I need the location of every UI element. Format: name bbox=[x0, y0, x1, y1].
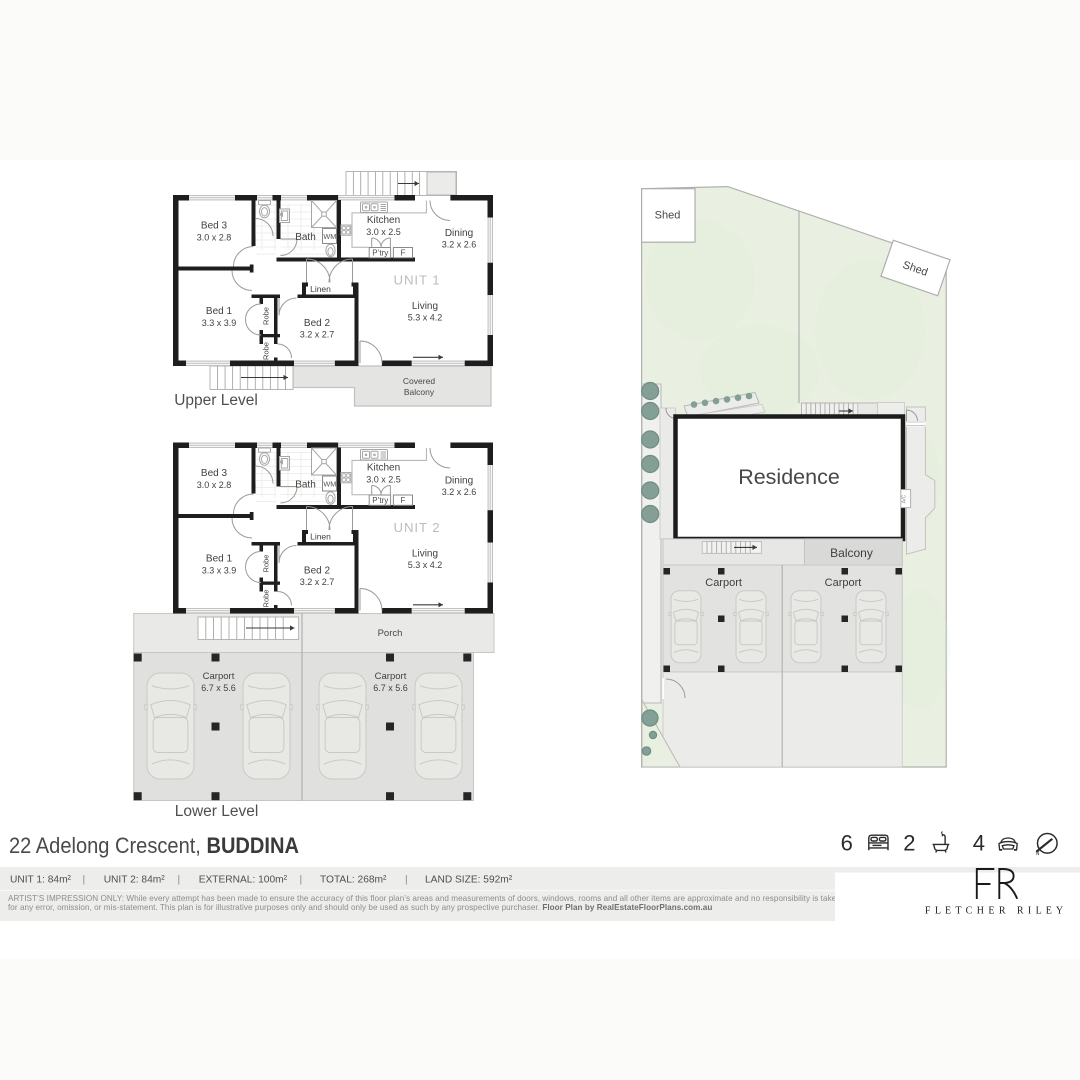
svg-text:Bed 2: Bed 2 bbox=[304, 318, 331, 329]
svg-text:22 Adelong Crescent, BUDDINA: 22 Adelong Crescent, BUDDINA bbox=[9, 833, 299, 858]
svg-text:Bath: Bath bbox=[295, 480, 316, 491]
svg-text:Lower Level: Lower Level bbox=[175, 803, 259, 820]
svg-text:4: 4 bbox=[973, 831, 985, 856]
svg-text:Linen: Linen bbox=[310, 532, 331, 542]
svg-text:P’try: P’try bbox=[372, 249, 388, 258]
svg-text:UNIT 1: 84m²: UNIT 1: 84m² bbox=[10, 875, 72, 886]
svg-text:Living: Living bbox=[412, 549, 438, 560]
svg-text:3.2 x 2.7: 3.2 x 2.7 bbox=[300, 330, 335, 340]
svg-text:6.7 x 5.6: 6.7 x 5.6 bbox=[201, 683, 236, 693]
svg-text:F: F bbox=[401, 496, 406, 505]
svg-text:TOTAL: 268m²: TOTAL: 268m² bbox=[320, 875, 387, 886]
svg-text:Kitchen: Kitchen bbox=[367, 215, 400, 226]
svg-text:Balcony: Balcony bbox=[830, 546, 873, 560]
svg-text:Linen: Linen bbox=[310, 284, 331, 294]
svg-text:|: | bbox=[405, 875, 408, 886]
svg-text:F L E T C H E R R I L E Y: F L E T C H E R R I L E Y bbox=[925, 906, 1064, 917]
svg-text:|: | bbox=[83, 875, 86, 886]
svg-text:Bath: Bath bbox=[295, 232, 316, 243]
svg-text:A/C: A/C bbox=[902, 494, 908, 503]
svg-text:Carport: Carport bbox=[375, 671, 407, 682]
svg-text:Porch: Porch bbox=[378, 628, 403, 639]
svg-text:Bed 1: Bed 1 bbox=[206, 306, 233, 317]
svg-text:UNIT 2: 84m²: UNIT 2: 84m² bbox=[104, 875, 166, 886]
svg-text:Dining: Dining bbox=[445, 476, 473, 487]
svg-text:for any error, omission, or mi: for any error, omission, or mis-statemen… bbox=[8, 903, 712, 912]
svg-text:Living: Living bbox=[412, 301, 438, 312]
svg-text:3.0 x 2.8: 3.0 x 2.8 bbox=[197, 233, 232, 243]
svg-text:Robe: Robe bbox=[262, 307, 271, 325]
svg-text:Bed 1: Bed 1 bbox=[206, 554, 233, 565]
svg-text:N: N bbox=[1036, 851, 1040, 857]
svg-text:3.0 x 2.5: 3.0 x 2.5 bbox=[366, 475, 401, 485]
svg-text:3.0 x 2.5: 3.0 x 2.5 bbox=[366, 227, 401, 237]
svg-text:WM: WM bbox=[323, 479, 336, 488]
svg-text:Bed 3: Bed 3 bbox=[201, 221, 228, 232]
svg-text:Dining: Dining bbox=[445, 228, 473, 239]
svg-text:2: 2 bbox=[903, 831, 915, 856]
svg-text:Residence: Residence bbox=[738, 465, 840, 489]
svg-text:UNIT 2: UNIT 2 bbox=[394, 520, 441, 535]
svg-text:Robe: Robe bbox=[262, 590, 271, 608]
svg-text:3.0 x 2.8: 3.0 x 2.8 bbox=[197, 480, 232, 490]
svg-text:6: 6 bbox=[841, 831, 853, 856]
svg-text:Carport: Carport bbox=[203, 671, 235, 682]
svg-text:6.7 x 5.6: 6.7 x 5.6 bbox=[373, 683, 408, 693]
svg-text:Robe: Robe bbox=[262, 555, 271, 573]
svg-text:3.3 x 3.9: 3.3 x 3.9 bbox=[202, 318, 237, 328]
svg-text:|: | bbox=[178, 875, 181, 886]
svg-text:3.3 x 3.9: 3.3 x 3.9 bbox=[202, 566, 237, 576]
svg-text:Upper Level: Upper Level bbox=[174, 392, 258, 409]
svg-text:3.2 x 2.7: 3.2 x 2.7 bbox=[300, 577, 335, 587]
svg-text:3.2 x 2.6: 3.2 x 2.6 bbox=[442, 487, 477, 497]
svg-text:Covered: Covered bbox=[403, 376, 435, 386]
svg-text:Kitchen: Kitchen bbox=[367, 463, 400, 474]
svg-text:Bed 2: Bed 2 bbox=[304, 566, 331, 577]
svg-text:F: F bbox=[401, 249, 406, 258]
svg-text:P’try: P’try bbox=[372, 496, 388, 505]
svg-text:3.2 x 2.6: 3.2 x 2.6 bbox=[442, 240, 477, 250]
svg-text:Balcony: Balcony bbox=[404, 387, 435, 397]
svg-text:EXTERNAL: 100m²: EXTERNAL: 100m² bbox=[199, 875, 288, 886]
svg-text:Bed 3: Bed 3 bbox=[201, 468, 228, 479]
svg-text:Shed: Shed bbox=[655, 210, 681, 222]
svg-text:Carport: Carport bbox=[705, 577, 742, 589]
svg-text:LAND SIZE: 592m²: LAND SIZE: 592m² bbox=[425, 875, 513, 886]
svg-text:5.3 x 4.2: 5.3 x 4.2 bbox=[408, 313, 443, 323]
svg-text:Carport: Carport bbox=[825, 577, 862, 589]
svg-text:ARTIST’S IMPRESSION ONLY: Whil: ARTIST’S IMPRESSION ONLY: While every at… bbox=[8, 894, 841, 903]
svg-text:WM: WM bbox=[323, 232, 336, 241]
svg-text:|: | bbox=[300, 875, 303, 886]
svg-text:UNIT 1: UNIT 1 bbox=[394, 273, 441, 288]
svg-text:Robe: Robe bbox=[262, 342, 271, 360]
svg-text:5.3 x 4.2: 5.3 x 4.2 bbox=[408, 560, 443, 570]
